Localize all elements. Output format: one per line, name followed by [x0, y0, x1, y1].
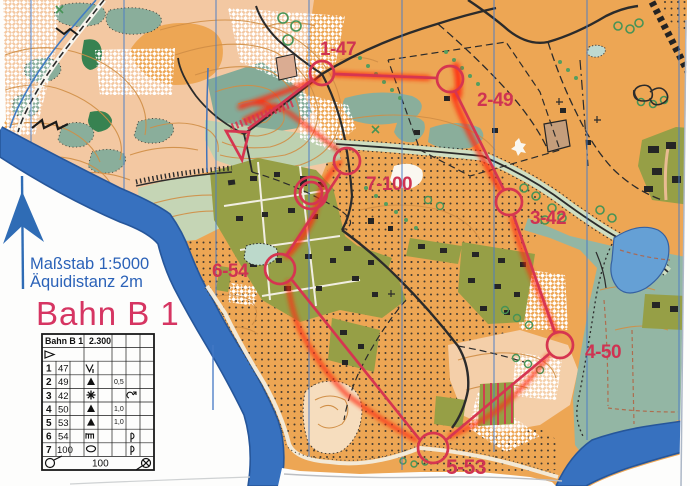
svg-text:1,0: 1,0 — [114, 406, 124, 413]
svg-text:5-53: 5-53 — [446, 456, 486, 479]
svg-text:6-54: 6-54 — [212, 261, 249, 282]
svg-text:1,0: 1,0 — [114, 419, 124, 426]
svg-text:Äquidistanz 2m: Äquidistanz 2m — [30, 273, 143, 291]
svg-text:2: 2 — [46, 377, 52, 388]
svg-text:100: 100 — [57, 445, 73, 456]
svg-text:49: 49 — [58, 377, 69, 388]
svg-text:53: 53 — [58, 418, 69, 429]
svg-text:47: 47 — [58, 364, 69, 375]
svg-text:2.300: 2.300 — [89, 336, 111, 346]
svg-text:4-50: 4-50 — [585, 342, 621, 363]
svg-text:100: 100 — [92, 459, 109, 470]
svg-text:Bahn B 1: Bahn B 1 — [45, 336, 83, 346]
svg-text:1: 1 — [46, 364, 52, 375]
svg-text:6: 6 — [46, 432, 52, 443]
svg-text:4: 4 — [46, 404, 52, 415]
svg-text:50: 50 — [58, 404, 69, 415]
svg-text:3: 3 — [46, 391, 52, 402]
svg-text:Maßstab 1:5000: Maßstab 1:5000 — [30, 255, 149, 273]
svg-text:1-47: 1-47 — [320, 39, 356, 60]
svg-text:0,5: 0,5 — [114, 379, 124, 386]
svg-text:3-42: 3-42 — [530, 208, 566, 229]
svg-text:42: 42 — [58, 391, 69, 402]
svg-text:2-49: 2-49 — [477, 90, 513, 111]
svg-text:7: 7 — [46, 445, 52, 456]
svg-text:7-100: 7-100 — [366, 174, 412, 195]
svg-text:Bahn B 1: Bahn B 1 — [36, 295, 180, 332]
svg-text:5: 5 — [46, 418, 52, 429]
svg-text:54: 54 — [58, 432, 69, 443]
